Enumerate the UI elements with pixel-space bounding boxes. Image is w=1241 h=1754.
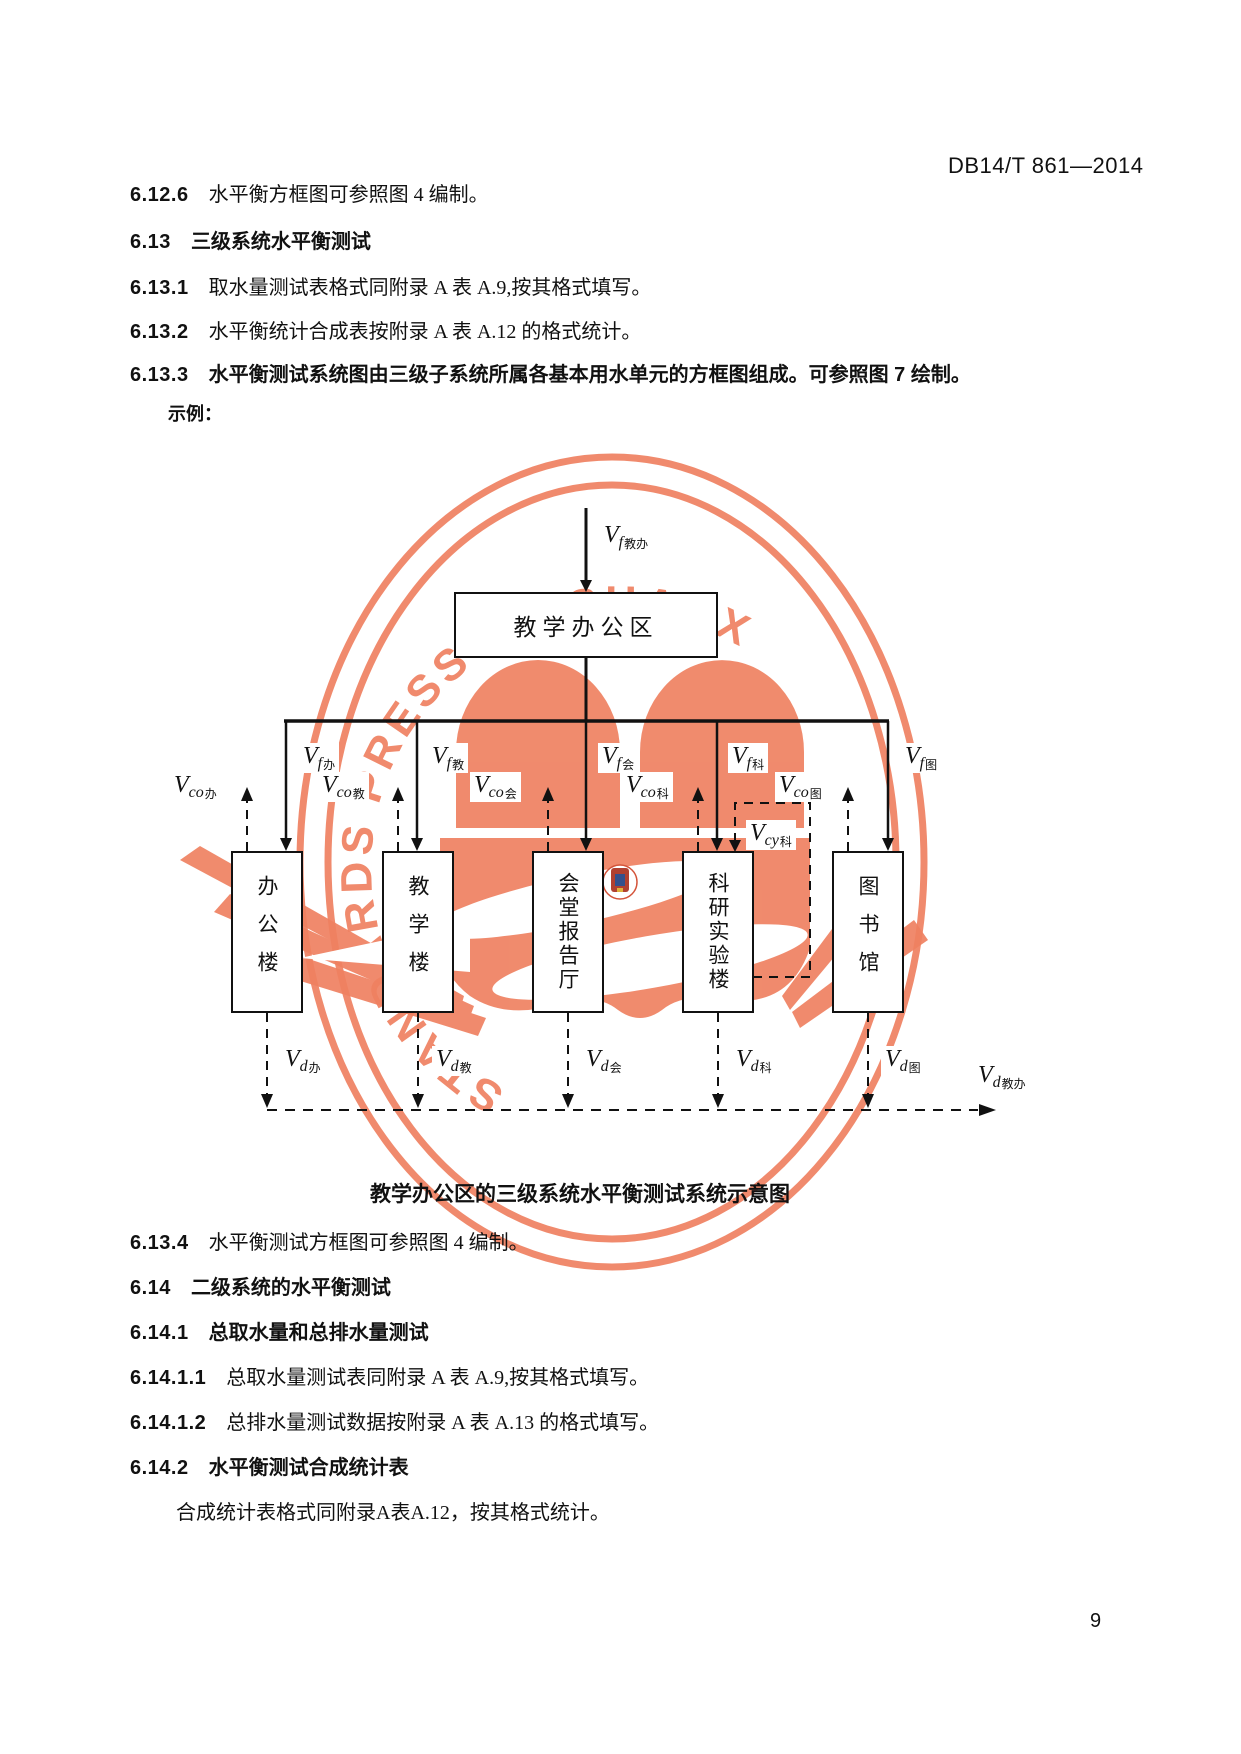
label-vcy-research: Vcy科: [746, 820, 796, 850]
section-6-14-2: 6.14.2水平衡测试合成统计表: [130, 1451, 409, 1480]
label-vd-office: Vd办: [281, 1046, 325, 1076]
label-vd-teaching: Vd教: [432, 1046, 476, 1076]
node-teaching-office-area: 教学办公区: [454, 592, 718, 658]
section-6-13: 6.13三级系统水平衡测试: [130, 225, 371, 254]
example-label: 示例：: [168, 400, 222, 426]
label-vco-office: Vco办: [170, 772, 221, 802]
label-vco-teaching: Vco教: [318, 772, 369, 802]
clause-number: 6.13.2: [130, 321, 189, 343]
label-vf-office: Vf办: [299, 743, 339, 773]
closing-paragraph: 合成统计表格式同附录A表A.12，按其格式统计。: [176, 1496, 610, 1525]
node-label: 教学办公区: [514, 608, 659, 642]
section-6-13-1: 6.13.1取水量测试表格式同附录 A 表 A.9,按其格式填写。: [130, 271, 651, 300]
section-6-13-4: 6.13.4水平衡测试方框图可参照图 4 编制。: [130, 1226, 529, 1255]
label-vf-auditorium: Vf会: [598, 743, 638, 773]
clause-number: 6.13.4: [130, 1232, 189, 1254]
node-teaching-building: 教学楼: [382, 851, 454, 1013]
clause-number: 6.13.1: [130, 277, 189, 299]
document-page: STANDARDS PRESS OF SHANXI: [0, 0, 1241, 1754]
section-6-14-1: 6.14.1总取水量和总排水量测试: [130, 1316, 429, 1345]
clause-number: 6.14.2: [130, 1457, 189, 1479]
label-vf-library: Vf图: [901, 743, 941, 773]
clause-number: 6.13: [130, 231, 171, 253]
clause-number: 6.14.1.1: [130, 1367, 206, 1389]
section-6-13-3: 6.13.3水平衡测试系统图由三级子系统所属各基本用水单元的方框图组成。可参照图…: [130, 358, 971, 387]
label-vd-total: Vd教办: [974, 1062, 1030, 1092]
doc-code-header: DB14/T 861—2014: [948, 153, 1143, 179]
clause-number: 6.14.1: [130, 1322, 189, 1344]
section-6-13-2: 6.13.2水平衡统计合成表按附录 A 表 A.12 的格式统计。: [130, 315, 641, 344]
node-label: 会堂报告厅: [553, 872, 583, 992]
node-label: 办公楼: [252, 875, 282, 989]
section-6-14-1-1: 6.14.1.1总取水量测试表同附录 A 表 A.9,按其格式填写。: [130, 1361, 649, 1390]
section-6-12-6: 6.12.6水平衡方框图可参照图 4 编制。: [130, 178, 489, 207]
label-vd-library: Vd图: [881, 1046, 925, 1076]
section-6-14: 6.14二级系统的水平衡测试: [130, 1271, 391, 1300]
node-label: 教学楼: [403, 875, 433, 989]
clause-number: 6.13.3: [130, 364, 189, 386]
node-auditorium-lecture-hall: 会堂报告厅: [532, 851, 604, 1013]
clause-number: 6.12.6: [130, 184, 189, 206]
flow-diagram-lines: [0, 0, 1241, 1754]
clause-number: 6.14.1.2: [130, 1412, 206, 1434]
node-library: 图书馆: [832, 851, 904, 1013]
node-research-lab-building: 科研实验楼: [682, 851, 754, 1013]
label-vf-research: Vf科: [728, 743, 768, 773]
figure-caption: 教学办公区的三级系统水平衡测试系统示意图: [0, 1178, 1160, 1208]
label-vco-library: Vco图: [775, 772, 826, 802]
node-office-building: 办公楼: [231, 851, 303, 1013]
node-label: 图书馆: [853, 875, 883, 989]
label-vd-auditorium: Vd会: [582, 1046, 626, 1076]
label-vf-total: Vf教办: [600, 522, 652, 552]
page-number: 9: [1090, 1610, 1101, 1633]
clause-number: 6.14: [130, 1277, 171, 1299]
section-6-14-1-2: 6.14.1.2总排水量测试数据按附录 A 表 A.13 的格式填写。: [130, 1406, 659, 1435]
label-vco-auditorium: Vco会: [470, 772, 521, 802]
label-vco-research: Vco科: [622, 772, 673, 802]
node-label: 科研实验楼: [703, 872, 733, 992]
label-vf-teaching: Vf教: [428, 743, 468, 773]
label-vd-research: Vd科: [732, 1046, 776, 1076]
